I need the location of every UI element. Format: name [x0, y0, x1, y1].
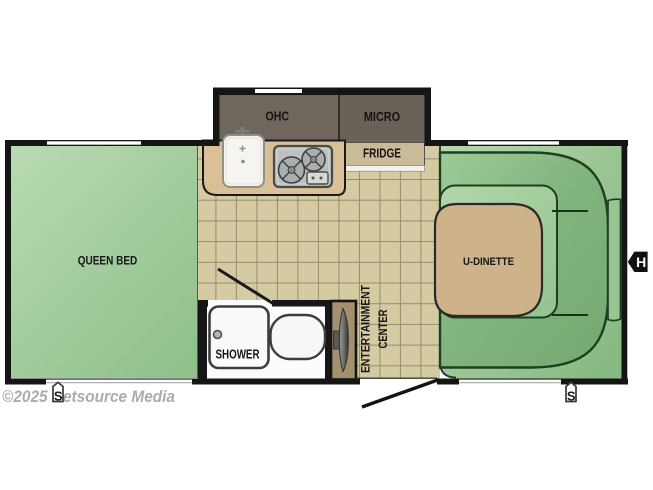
svg-text:H: H — [636, 254, 646, 270]
svg-text:S: S — [54, 388, 63, 403]
svg-text:CENTER: CENTER — [376, 309, 390, 348]
svg-text:ENTERTAINMENT: ENTERTAINMENT — [359, 284, 373, 373]
svg-text:SHOWER: SHOWER — [216, 348, 260, 362]
svg-text:OHC: OHC — [266, 109, 290, 124]
svg-text:MICRO: MICRO — [364, 109, 400, 124]
svg-text:FRIDGE: FRIDGE — [363, 146, 401, 161]
svg-text:QUEEN BED: QUEEN BED — [78, 254, 138, 268]
svg-text:S: S — [567, 388, 576, 403]
svg-text:U-DINETTE: U-DINETTE — [463, 256, 514, 268]
svg-text:©2025 Netsource Media: ©2025 Netsource Media — [2, 388, 175, 406]
